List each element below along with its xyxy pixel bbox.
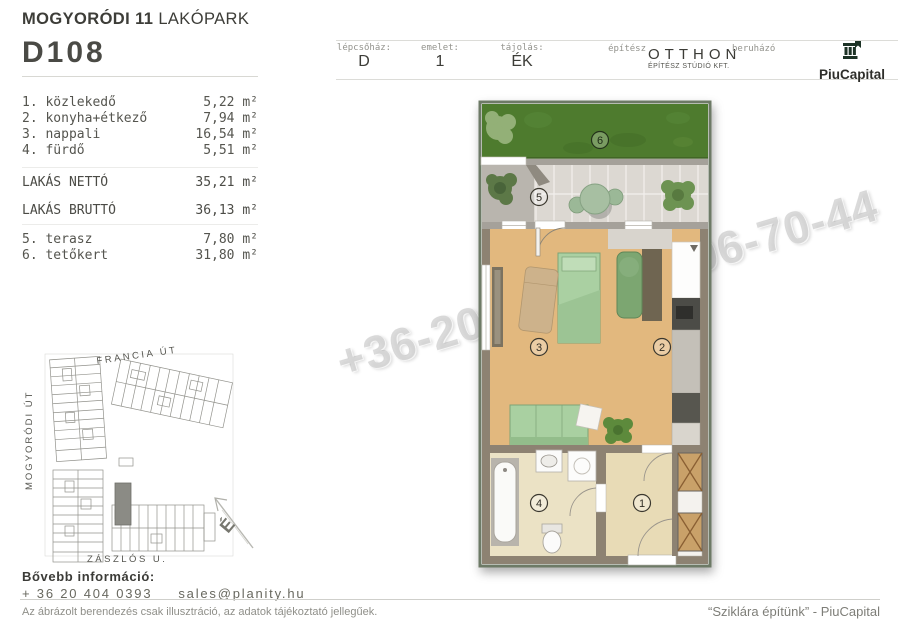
svg-text:2: 2: [659, 342, 665, 354]
room-label: 3. nappali: [22, 127, 100, 142]
plant-icon: [603, 417, 633, 444]
staircase-label: lépcsőház:: [336, 43, 392, 53]
disclaimer: Az ábrázolt berendezés csak illusztráció…: [22, 606, 377, 618]
total-area: 36,13 m²: [195, 203, 258, 218]
room-area: 31,80 m²: [195, 248, 258, 263]
total-gross-row: LAKÁS BRUTTÓ36,13 m²: [22, 203, 258, 218]
outdoor-row: 5. terasz7,80 m²: [22, 232, 258, 247]
total-label: LAKÁS NETTÓ: [22, 175, 108, 190]
staircase-value: D: [336, 53, 392, 71]
project-title: MOGYORÓDI 11 LAKÓPARK: [22, 10, 249, 29]
bath-hall-area: [482, 445, 708, 565]
terrace-area: [481, 157, 708, 222]
plant-icon: [661, 180, 695, 211]
piucapital-column-icon: [840, 41, 864, 62]
room-area: 16,54 m²: [195, 127, 258, 142]
outdoor-row: 6. tetőkert31,80 m²: [22, 248, 258, 263]
unit-id: D108: [22, 36, 106, 70]
room-row: 2. konyha+étkező7,94 m²: [22, 111, 258, 126]
compass-north-label: É: [215, 514, 239, 537]
orientation-value: ÉK: [494, 53, 550, 71]
shaft-icon: [678, 453, 702, 491]
room-number-kitchen: 2: [654, 339, 671, 356]
total-label: LAKÁS BRUTTÓ: [22, 203, 116, 218]
svg-text:6: 6: [597, 135, 603, 147]
street-label-left: MOGYORÓDI ÚT: [24, 391, 35, 490]
floor-label: emelet:: [412, 43, 468, 53]
info-bar: lépcsőház: D emelet: 1 tájolás: ÉK építé…: [336, 40, 898, 80]
site-building: [53, 470, 103, 562]
terrace-wall: [482, 221, 708, 230]
floor-value: 1: [412, 53, 468, 71]
title-divider: [22, 76, 258, 77]
shaft-icon: [678, 513, 702, 551]
washing-machine-icon: [568, 451, 596, 481]
sink-icon: [536, 450, 562, 472]
architect-subtitle: ÉPÍTÉSZ STÚDIÓ KFT.: [648, 63, 724, 70]
list-divider: [22, 167, 258, 168]
room-number-terrace: 5: [531, 189, 548, 206]
room-number-roof-garden: 6: [592, 132, 609, 149]
floorplan-datasheet: MOGYORÓDI 11 LAKÓPARK D108 lépcsőház: D …: [0, 0, 900, 636]
roof-garden-area: [482, 104, 708, 158]
project-title-bold: MOGYORÓDI 11: [22, 10, 153, 28]
total-area: 35,21 m²: [195, 175, 258, 190]
info-cell-staircase: lépcsőház: D: [336, 43, 392, 71]
svg-text:5: 5: [536, 192, 542, 204]
slogan: “Sziklára építünk” - PiuCapital: [708, 604, 880, 619]
info-cell-orientation: tájolás: ÉK: [494, 43, 550, 71]
footer-rule: [20, 599, 880, 600]
contact-heading: Bővebb információ:: [22, 569, 155, 584]
street-label-top: FRANCIA ÚT: [96, 345, 178, 367]
north-arrow-icon: É: [215, 498, 253, 548]
developer-label: beruházó: [732, 44, 775, 54]
bathtub-icon: [491, 458, 519, 546]
info-cell-floor: emelet: 1: [412, 43, 468, 71]
site-map: FRANCIA ÚT MOGYORÓDI ÚT ZÁSZLÓS U. É: [15, 338, 270, 570]
bed-icon: [558, 253, 600, 343]
developer-name: PiuCapital: [812, 67, 892, 82]
svg-text:1: 1: [639, 498, 645, 510]
room-label: 2. konyha+étkező: [22, 111, 147, 126]
room-label: 5. terasz: [22, 232, 92, 247]
room-area: 7,94 m²: [203, 111, 258, 126]
room-area: 7,80 m²: [203, 232, 258, 247]
room-label: 1. közlekedő: [22, 95, 116, 110]
room-number-hall: 1: [634, 495, 651, 512]
sofa-icon: [510, 404, 602, 450]
room-number-living: 3: [531, 339, 548, 356]
architect-name: OTTHON: [648, 46, 724, 63]
svg-text:4: 4: [536, 498, 542, 510]
street-label-bottom: ZÁSZLÓS U.: [87, 554, 167, 565]
room-area: 5,51 m²: [203, 143, 258, 158]
developer-logo: PiuCapital: [812, 41, 892, 82]
toilet-icon: [542, 524, 562, 553]
floor-plan: 6 5 3 2 4 1: [478, 100, 712, 568]
svg-text:3: 3: [536, 342, 542, 354]
list-divider: [22, 224, 258, 225]
architect-label: építész: [588, 44, 646, 54]
site-building: [111, 359, 232, 428]
room-row: 3. nappali16,54 m²: [22, 127, 258, 142]
room-number-bath: 4: [531, 495, 548, 512]
room-label: 6. tetőkert: [22, 248, 108, 263]
orientation-label: tájolás:: [494, 43, 550, 53]
room-row: 4. fürdő5,51 m²: [22, 143, 258, 158]
total-net-row: LAKÁS NETTÓ35,21 m²: [22, 175, 258, 190]
room-row: 1. közlekedő5,22 m²: [22, 95, 258, 110]
room-area: 5,22 m²: [203, 95, 258, 110]
highlighted-unit: [115, 483, 131, 525]
architect-logo: OTTHON ÉPÍTÉSZ STÚDIÓ KFT.: [648, 41, 724, 70]
project-title-regular: LAKÓPARK: [153, 10, 249, 28]
room-label: 4. fürdő: [22, 143, 85, 158]
site-building: [50, 356, 107, 461]
